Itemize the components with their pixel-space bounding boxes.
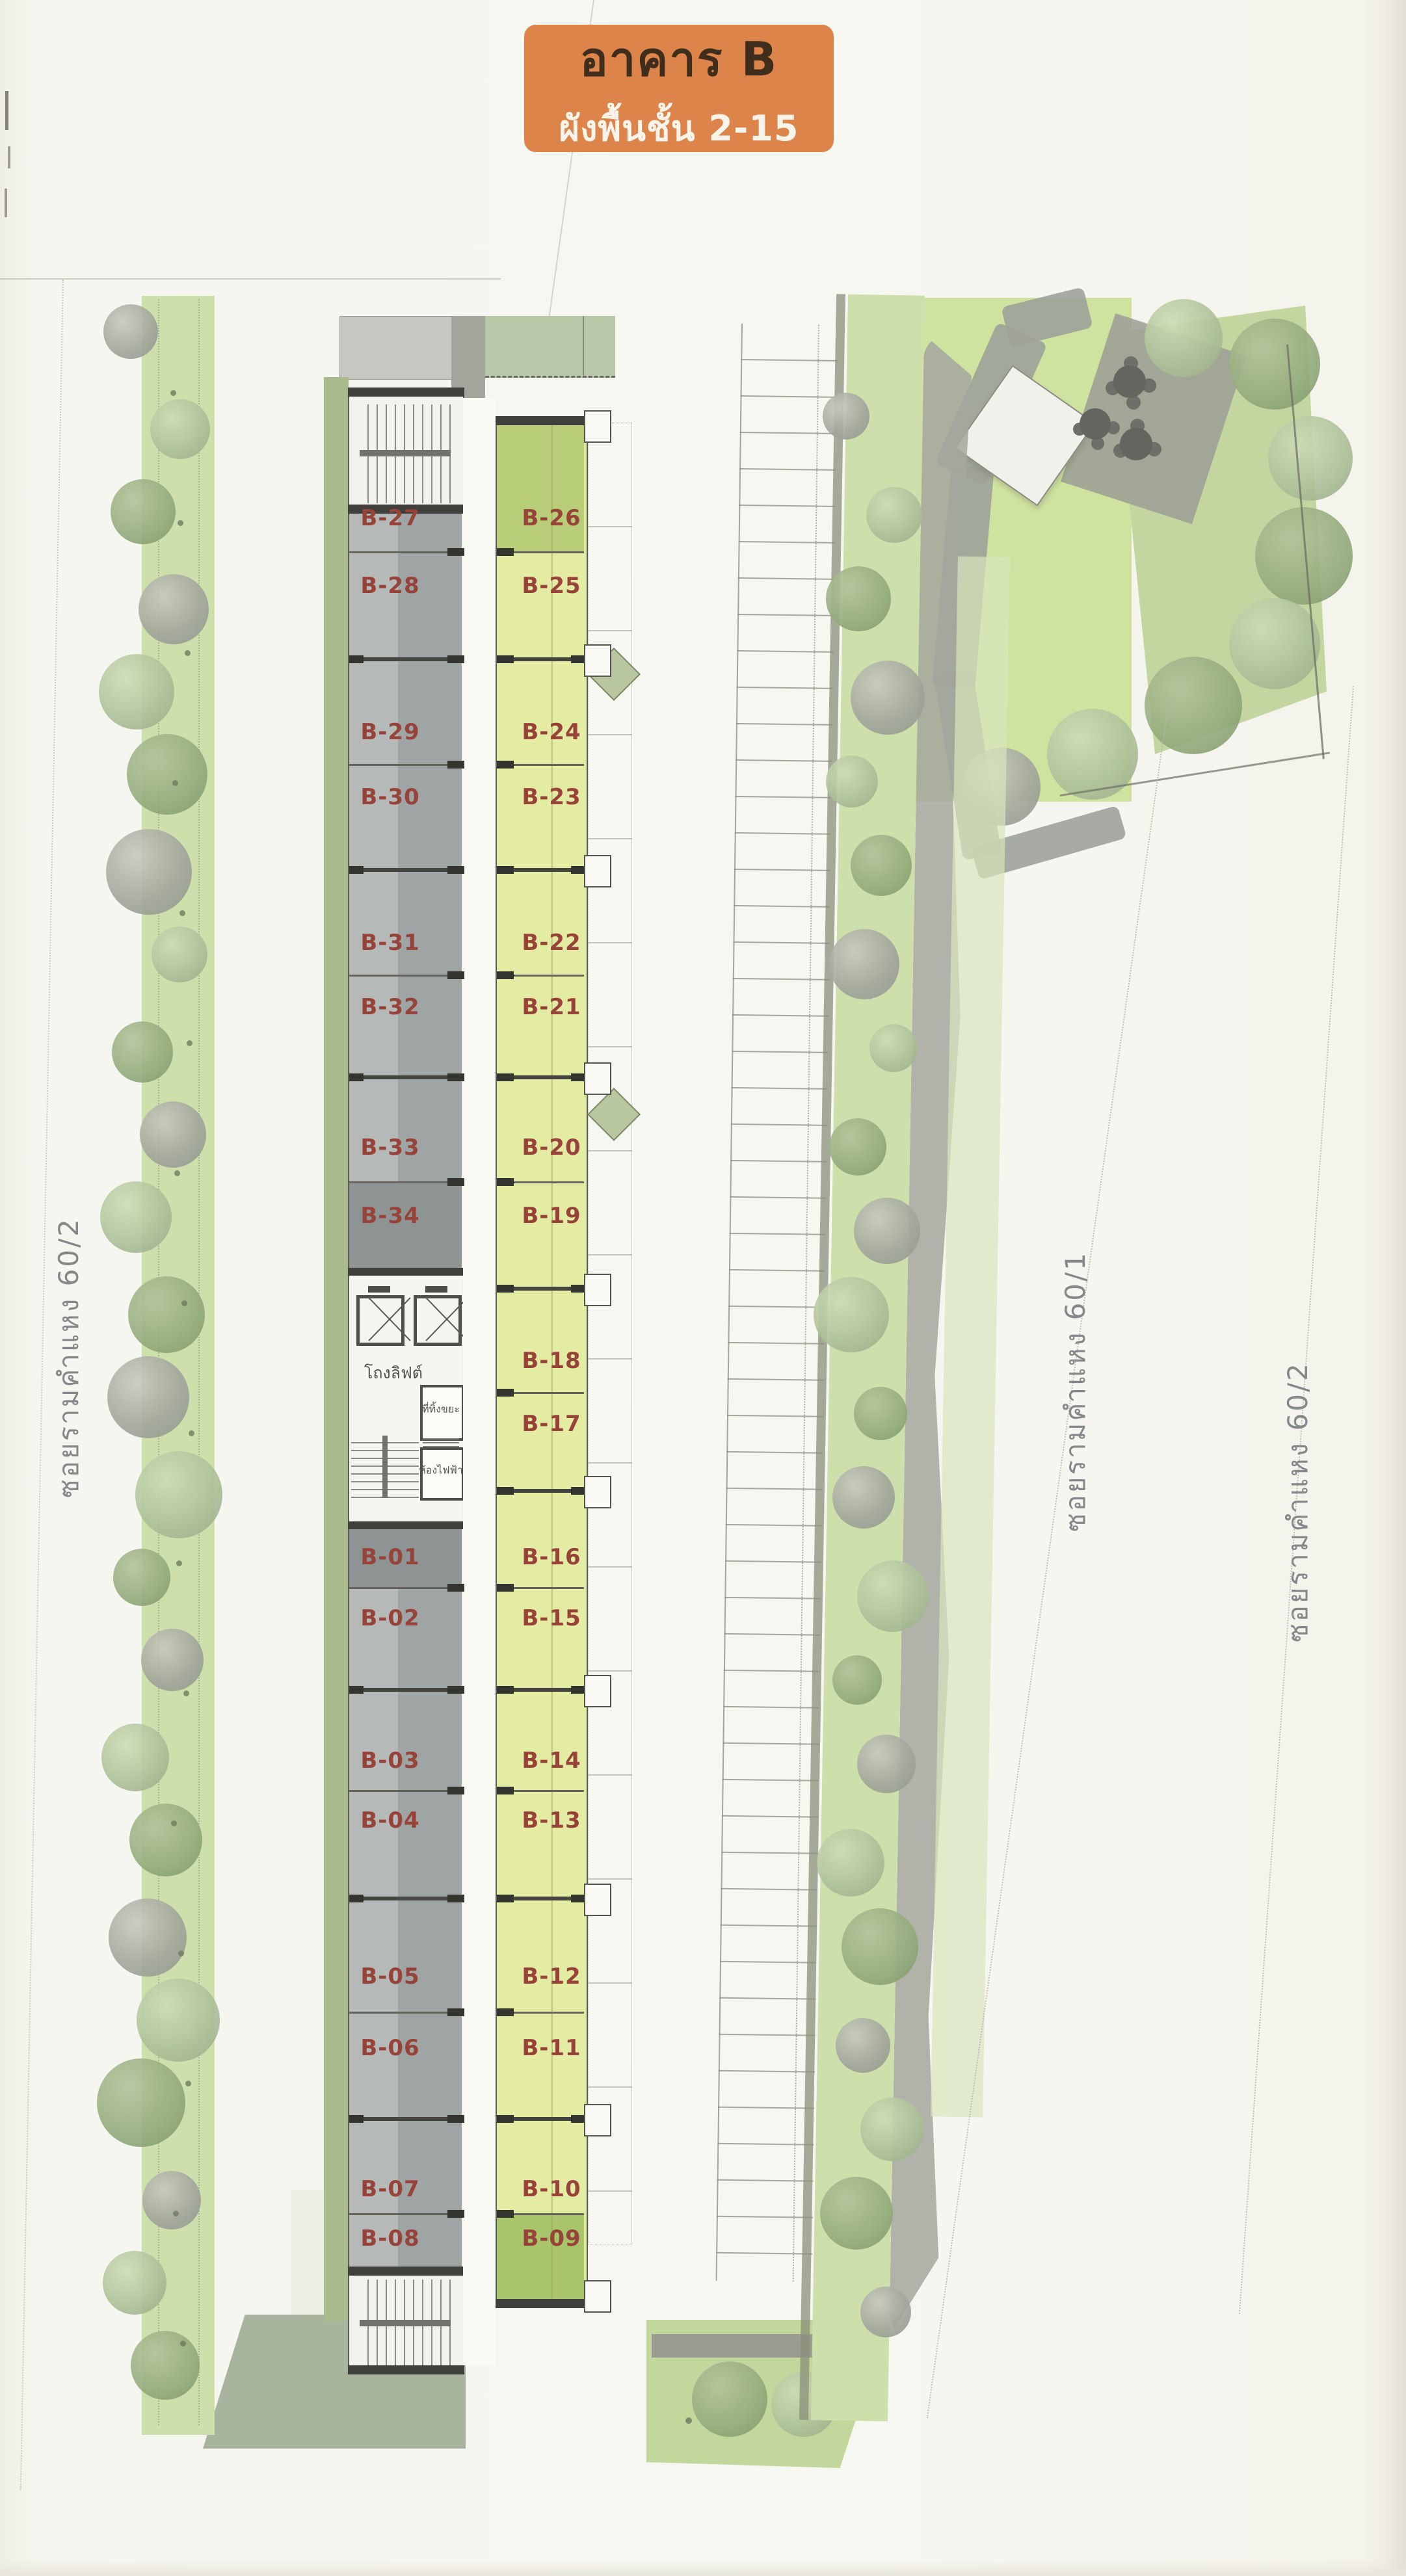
wall-tick [497, 1389, 514, 1397]
party-wall [349, 868, 462, 872]
wall-tick [497, 2008, 514, 2016]
tree-icon [101, 1724, 169, 1791]
party-wall [349, 2117, 462, 2121]
wall-tick [447, 1895, 464, 1902]
party-wall [349, 551, 462, 553]
wall-tick [349, 1073, 364, 1081]
shrub-dot [181, 1300, 187, 1306]
tree-icon [111, 479, 176, 544]
wall-tick [447, 1073, 464, 1081]
tree-icon [814, 1277, 889, 1352]
tree-icon [142, 2171, 201, 2229]
scan-edge-right [1386, 0, 1406, 2576]
party-wall [349, 1897, 462, 1900]
tree-icon [129, 1804, 202, 1876]
wall-tick [571, 1686, 585, 1694]
tree-icon [817, 1829, 884, 1897]
wall-tick [447, 866, 464, 874]
wall-tick [447, 2210, 464, 2218]
balcony [584, 1476, 611, 1508]
wall-tick [497, 1073, 514, 1081]
balcony [584, 1274, 611, 1306]
tree-icon [135, 1451, 222, 1538]
tree-icon [869, 1024, 918, 1072]
unit-label-B-25: B-25 [522, 573, 581, 599]
wall-tick [571, 1285, 585, 1293]
unit-label-B-04: B-04 [360, 1807, 419, 1833]
unit-label-B-34: B-34 [360, 1203, 419, 1229]
tree-icon [139, 574, 209, 644]
balcony [584, 1062, 611, 1095]
unit-label-B-01: B-01 [360, 1544, 419, 1570]
tree-icon [127, 734, 207, 815]
tree-icon [826, 756, 878, 808]
unit-label-B-27: B-27 [360, 505, 419, 531]
unit-label-B-22: B-22 [522, 930, 581, 956]
party-wall [349, 1688, 462, 1692]
unit-label-B-11: B-11 [522, 2035, 581, 2061]
tree-icon [152, 927, 207, 982]
unit-label-B-14: B-14 [522, 1748, 581, 1774]
wall-tick [497, 1686, 514, 1694]
tree-icon [857, 1735, 916, 1793]
unit-label-B-19: B-19 [522, 1203, 581, 1229]
tree-icon [141, 1629, 204, 1691]
unit-label-B-23: B-23 [522, 784, 581, 810]
party-wall [349, 2012, 462, 2014]
wall-tick [497, 2210, 514, 2218]
tree-icon [836, 2018, 890, 2073]
wall-tick [447, 2115, 464, 2123]
wall-tick [349, 655, 364, 663]
tree-icon [857, 1560, 929, 1632]
floor-plan-sheet: อาคาร B ผังพื้นชั้น 2-15 [0, 0, 1406, 2576]
party-wall [349, 657, 462, 661]
unit-label-B-26: B-26 [522, 505, 581, 531]
wall-tick [497, 761, 514, 769]
tree-icon [832, 1466, 895, 1529]
unit-label-B-03: B-03 [360, 1748, 419, 1774]
tree-icon [137, 1978, 220, 2062]
unit-label-B-24: B-24 [522, 719, 581, 745]
tree-icon [106, 829, 192, 915]
wall-tick [497, 548, 514, 556]
wall-tick [447, 971, 464, 979]
tree-icon [99, 654, 174, 729]
wall-tick [497, 1895, 514, 1902]
wall-tick [571, 655, 585, 663]
shrub-dot [174, 1170, 180, 1176]
party-wall [349, 1790, 462, 1792]
tree-icon [97, 2058, 185, 2147]
wall-tick [497, 866, 514, 874]
tree-icon [109, 1899, 187, 1977]
tree-icon [107, 1356, 189, 1438]
tree-icon [112, 1021, 173, 1083]
tree-icon [860, 2287, 911, 2337]
unit-label-B-17: B-17 [522, 1411, 581, 1437]
shrub-dot [178, 1951, 184, 1956]
shrub-dot [170, 390, 176, 396]
unit-label-B-29: B-29 [360, 719, 419, 745]
balcony [584, 1675, 611, 1707]
unit-label-B-21: B-21 [522, 994, 581, 1020]
tree-icon [854, 1198, 920, 1264]
tree-icon [103, 304, 158, 359]
party-wall [349, 1587, 462, 1589]
shrub-dot [187, 1040, 192, 1046]
tree-icon [854, 1387, 907, 1440]
shrub-dot [176, 1560, 182, 1566]
unit-label-B-20: B-20 [522, 1135, 581, 1161]
wall-tick [447, 548, 464, 556]
tree-icon [832, 1655, 882, 1705]
wall-tick [571, 1895, 585, 1902]
shrub-dot [178, 520, 183, 526]
shrub-dot [189, 1430, 194, 1436]
wall-tick [497, 2115, 514, 2123]
wall-tick [497, 971, 514, 979]
tree-icon [128, 1276, 205, 1353]
wall-tick [497, 1787, 514, 1794]
unit-label-B-18: B-18 [522, 1348, 581, 1374]
unit-label-B-02: B-02 [360, 1605, 419, 1631]
wall-tick [447, 1178, 464, 1186]
wall-tick [349, 1895, 364, 1902]
unit-label-B-12: B-12 [522, 1964, 581, 1990]
unit-label-B-06: B-06 [360, 2035, 419, 2061]
balcony [584, 2104, 611, 2136]
unit-label-B-09: B-09 [522, 2226, 581, 2252]
tree-icon [823, 393, 869, 440]
scan-edge-bottom [0, 2559, 1406, 2576]
wall-tick [571, 1487, 585, 1495]
unit-label-B-30: B-30 [360, 784, 419, 810]
wall-tick [497, 1178, 514, 1186]
unit-label-B-08: B-08 [360, 2226, 419, 2252]
wall-tick [571, 1073, 585, 1081]
unit-label-B-10: B-10 [522, 2176, 581, 2202]
tree-icon [113, 1549, 170, 1606]
wall-tick [447, 761, 464, 769]
wall-tick [349, 1686, 364, 1694]
wall-tick [571, 2115, 585, 2123]
tree-icon [866, 487, 922, 543]
wall-tick [571, 866, 585, 874]
shrub-dot [173, 2211, 179, 2216]
tree-icon [829, 929, 899, 999]
tree-icon [826, 566, 891, 631]
shrub-dot [179, 910, 185, 916]
tree-icon [842, 1908, 918, 1985]
wall-tick [349, 2115, 364, 2123]
party-wall [349, 764, 462, 766]
wall-tick [349, 866, 364, 874]
wall-tick [497, 655, 514, 663]
balcony [584, 2280, 611, 2313]
shrub-dot [185, 650, 191, 656]
party-wall [349, 975, 462, 977]
tree-icon [860, 2097, 924, 2161]
tree-icon [131, 2331, 200, 2400]
tree-icon [150, 399, 210, 459]
balcony [584, 644, 611, 677]
shrub-dot [171, 1820, 177, 1826]
unit-label-B-32: B-32 [360, 994, 419, 1020]
generated-plan-details: B-27B-26B-28B-25B-29B-24B-30B-23B-31B-22… [0, 0, 1406, 2576]
unit-label-B-16: B-16 [522, 1544, 581, 1570]
wall-tick [447, 2008, 464, 2016]
tree-icon [851, 661, 925, 735]
wall-tick [497, 1487, 514, 1495]
balcony [584, 410, 611, 443]
shrub-dot [180, 2341, 186, 2346]
party-wall [349, 1181, 462, 1183]
unit-label-B-28: B-28 [360, 573, 419, 599]
tree-icon [103, 2251, 166, 2315]
tree-icon [851, 835, 912, 896]
wall-tick [497, 1584, 514, 1592]
tree-icon [829, 1118, 886, 1176]
unit-label-B-31: B-31 [360, 930, 419, 956]
unit-label-B-15: B-15 [522, 1605, 581, 1631]
unit-label-B-33: B-33 [360, 1135, 419, 1161]
balcony [584, 1884, 611, 1916]
shrub-dot [183, 1690, 189, 1696]
wall-tick [447, 1686, 464, 1694]
party-wall [349, 1075, 462, 1079]
wall-tick [447, 1787, 464, 1794]
shrub-dot [172, 780, 178, 786]
tree-icon [100, 1181, 172, 1253]
unit-label-B-05: B-05 [360, 1964, 419, 1990]
wall-tick [497, 1285, 514, 1293]
tree-icon [820, 2177, 893, 2250]
shrub-dot [185, 2081, 191, 2086]
unit-label-B-13: B-13 [522, 1807, 581, 1833]
wall-tick [447, 1584, 464, 1592]
tree-icon [140, 1101, 206, 1168]
wall-tick [447, 655, 464, 663]
balcony [584, 855, 611, 887]
unit-label-B-07: B-07 [360, 2176, 419, 2202]
party-wall [349, 2213, 462, 2215]
